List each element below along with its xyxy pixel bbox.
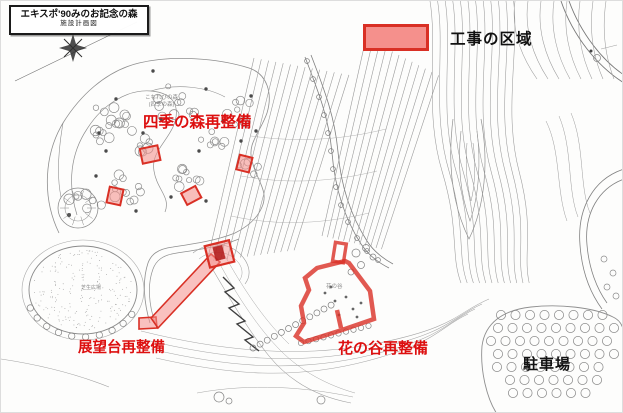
zone-shiki-patch-1 <box>140 145 161 163</box>
label-valley-small: 花の谷 <box>326 282 343 290</box>
zone-shiki-patch-2 <box>106 187 123 206</box>
zone-hananotani-inner-stub <box>337 310 341 328</box>
zone-shiki-patch-4 <box>236 155 252 173</box>
label-forest-small-line1: こもれびの森 <box>145 95 178 102</box>
plan-title: エキスポ'90みのお記念の森 <box>11 9 147 20</box>
zone-shiki-patch-3 <box>181 186 201 205</box>
construction-zone-swatch <box>363 24 429 51</box>
construction-zones <box>106 145 374 342</box>
label-parking: 駐車場 <box>523 353 571 374</box>
label-forest-small-line2: (四季の森) <box>145 102 178 109</box>
title-block: エキスポ'90みのお記念の森 施設計画図 <box>9 5 149 35</box>
label-tenbodai: 展望台再整備 <box>78 336 165 357</box>
label-shiki-no-mori: 四季の森再整備 <box>143 110 252 132</box>
label-lawn-small: 芝生広場 <box>81 284 101 291</box>
plan-subtitle: 施設計画図 <box>11 20 147 28</box>
label-hana-no-tani: 花の谷再整備 <box>338 337 428 358</box>
legend-label: 工事の区域 <box>450 27 533 49</box>
legend: 工事の区域 <box>363 24 533 51</box>
label-forest-small: こもれびの森 (四季の森) <box>145 95 178 108</box>
site-plan-canvas: エキスポ'90みのお記念の森 施設計画図 工事の区域 四季の森再整備 展望台再整… <box>0 0 623 413</box>
